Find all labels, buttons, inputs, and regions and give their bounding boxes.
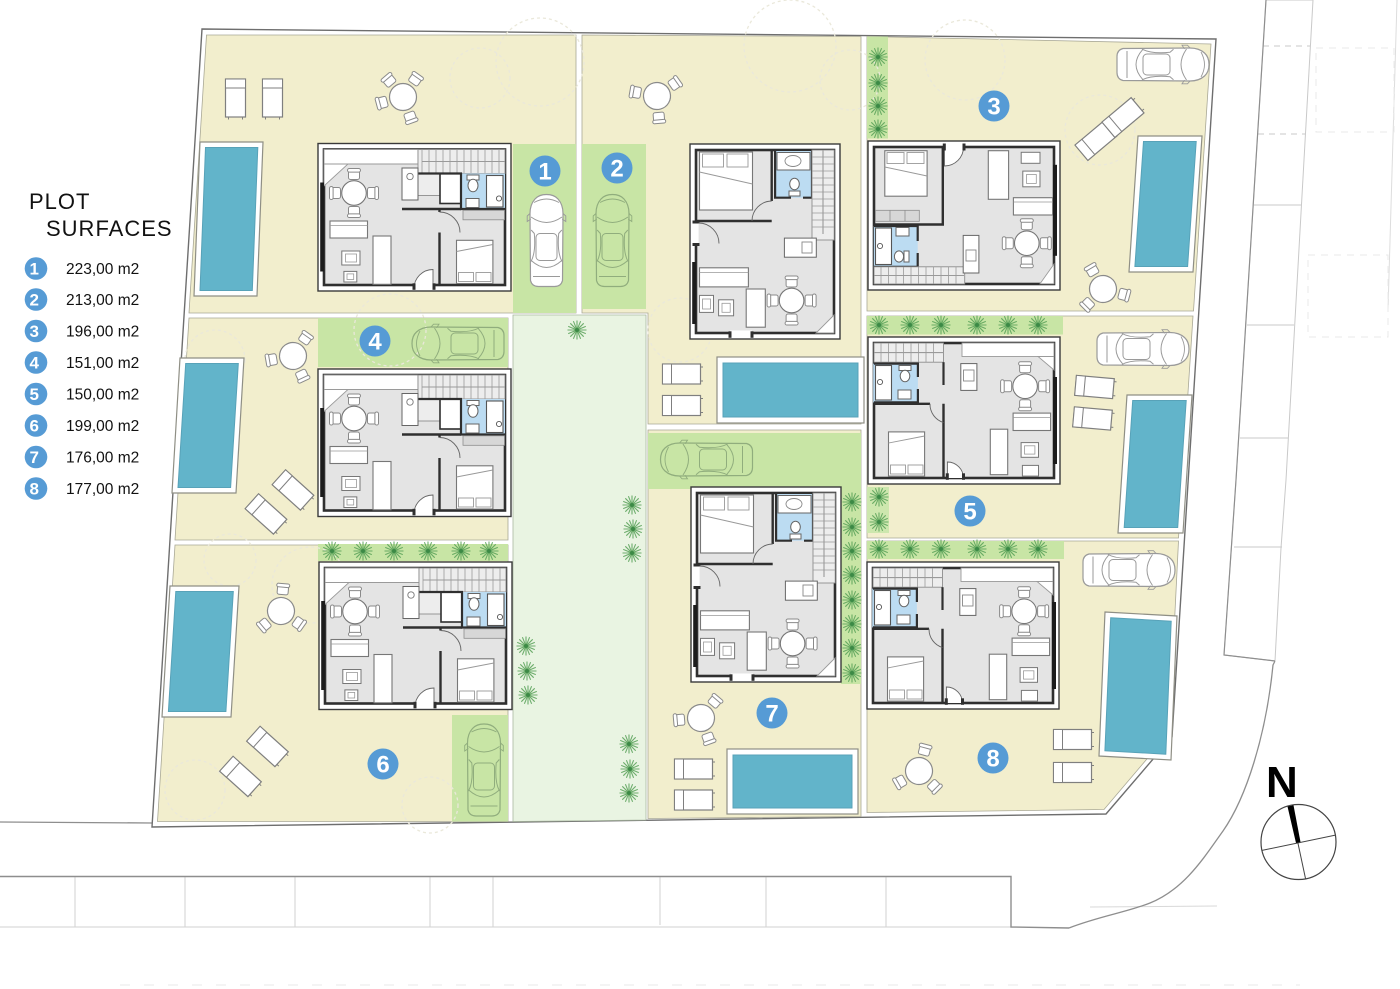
svg-text:8: 8 (30, 480, 39, 499)
svg-text:7: 7 (765, 701, 778, 728)
svg-text:151,00 m2: 151,00 m2 (66, 355, 139, 372)
svg-text:150,00 m2: 150,00 m2 (66, 387, 139, 404)
svg-text:2: 2 (610, 156, 623, 183)
svg-text:SURFACES: SURFACES (46, 216, 173, 241)
svg-text:1: 1 (30, 260, 39, 279)
svg-text:7: 7 (30, 448, 39, 467)
svg-text:177,00 m2: 177,00 m2 (66, 481, 139, 498)
svg-text:4: 4 (368, 329, 382, 356)
svg-text:1: 1 (538, 159, 551, 186)
svg-text:5: 5 (963, 499, 976, 526)
svg-text:N: N (1266, 758, 1298, 807)
svg-text:PLOT: PLOT (29, 189, 90, 214)
svg-text:213,00 m2: 213,00 m2 (66, 292, 139, 309)
svg-text:223,00 m2: 223,00 m2 (66, 261, 139, 278)
svg-text:176,00 m2: 176,00 m2 (66, 450, 139, 467)
svg-text:6: 6 (30, 417, 39, 436)
svg-text:199,00 m2: 199,00 m2 (66, 418, 139, 435)
svg-text:2: 2 (30, 291, 39, 310)
svg-text:6: 6 (376, 752, 389, 779)
svg-text:3: 3 (987, 94, 1000, 121)
svg-text:8: 8 (986, 746, 999, 773)
svg-text:196,00 m2: 196,00 m2 (66, 324, 139, 341)
svg-text:3: 3 (30, 322, 39, 341)
svg-text:5: 5 (30, 385, 39, 404)
svg-text:4: 4 (30, 354, 40, 373)
